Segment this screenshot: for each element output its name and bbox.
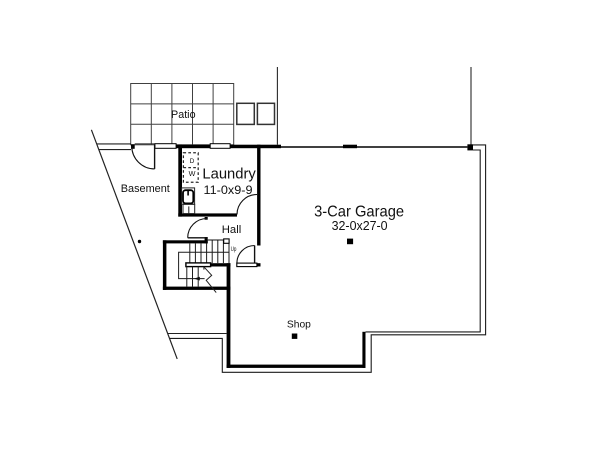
svg-text:W: W (189, 171, 196, 178)
svg-text:Hall: Hall (222, 224, 242, 236)
svg-text:11-0x9-9: 11-0x9-9 (204, 183, 253, 197)
svg-text:32-0x27-0: 32-0x27-0 (332, 218, 388, 233)
svg-text:Basement: Basement (121, 183, 171, 195)
svg-text:D: D (190, 158, 195, 165)
svg-text:Patio: Patio (171, 109, 196, 121)
svg-text:Shop: Shop (287, 320, 311, 331)
svg-text:Up: Up (231, 246, 237, 253)
svg-text:Laundry: Laundry (202, 165, 256, 182)
